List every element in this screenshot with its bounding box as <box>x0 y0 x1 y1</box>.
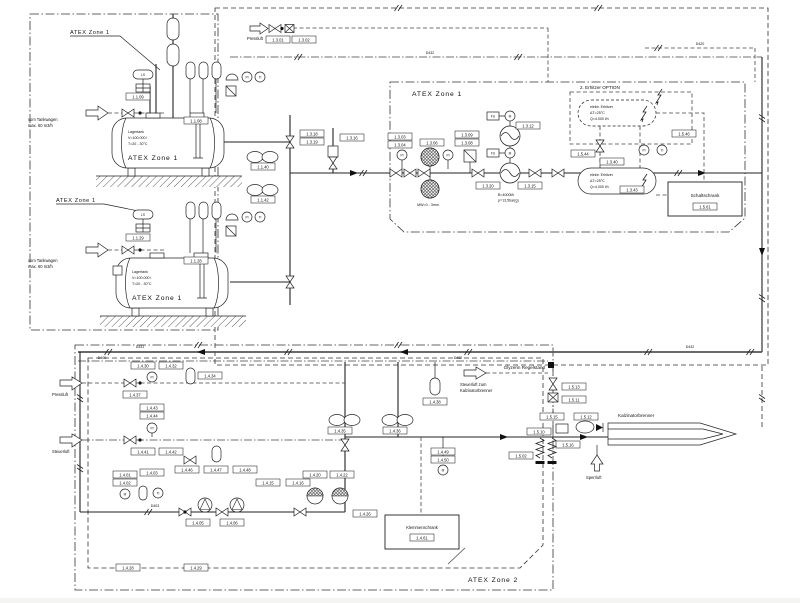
glyzerin-riser-1: 1.4.35 <box>328 415 360 452</box>
lightning-icon <box>656 89 662 105</box>
tag-box: 1.4.05 <box>192 520 204 525</box>
ti-gauge-label: TI <box>661 148 664 152</box>
tag-box: 1.5.13 <box>568 384 580 389</box>
pi-gauge-1: PI <box>397 150 407 169</box>
pressluft-supply-bottom: Pressluft 1.4.37 <box>52 377 147 398</box>
tag-box: 1.4.20 <box>309 472 321 477</box>
zone-label-atex1-midleft: ATEX Zone 1 <box>56 198 96 204</box>
tank1-zone-label: ATEX Zone 1 <box>128 155 178 162</box>
ls-instrument-label: LS <box>141 213 145 217</box>
tag-box: 1.4.35 <box>334 428 346 433</box>
pid-diagram: ATEX Zone 1 ATEX Zone 1 ATEX Zone 1 ATEX… <box>0 0 800 598</box>
heater-sensors: PI TI 1.5.44 1.3.40 1.5.46 <box>571 130 696 165</box>
pump-cluster-center: 1.4.15 1.4.16 1.4.20 1.4.22 1.4.26 <box>256 471 377 517</box>
tank1-name: Lagertank <box>128 130 144 134</box>
tag-box: 1.4.37 <box>129 392 141 397</box>
tag-box: 1.1.28 <box>190 258 202 263</box>
buffer-capsule: 1.4.38 <box>423 362 447 405</box>
heater2-line2: ΔT=25°C <box>590 179 605 183</box>
tag-box: 1.3.20 <box>482 183 494 188</box>
tag-box: 1.3.16 <box>346 135 358 140</box>
line-label-d403: D403 <box>151 504 160 508</box>
heater1-line1: elektr. Erhitzer <box>590 105 614 109</box>
tag-box: 1.3.43 <box>626 187 638 192</box>
tank2-volume: V=100.000 l <box>132 276 151 280</box>
line-label-d432-top: D432 <box>426 51 435 55</box>
tag-box: 1.4.43 <box>146 405 158 410</box>
pressluft-supply-top: Pressluft 1.3.01 1.3.02 <box>247 23 316 43</box>
pressluft-label-bottom: Pressluft <box>52 392 69 397</box>
filter-mesh-label: MW=0 - 3mm <box>417 203 439 207</box>
line-label-d420: D420 <box>696 42 705 46</box>
tag-box: 1.4.36 <box>389 428 401 433</box>
ti-gauge-label: TI <box>157 491 160 495</box>
tag-box: 1.3.02 <box>298 37 310 42</box>
collector-station: 1.1.40 1.1.42 <box>247 136 294 288</box>
tag-box: 1.5.11 <box>568 397 580 402</box>
tag-box: 1.4.30 <box>137 363 149 368</box>
fu-box-label: FU <box>491 152 496 156</box>
tag-box: 1.5.61 <box>699 204 711 209</box>
tag-box: 1.4.02 <box>119 480 131 485</box>
tag-box: 1.5.10 <box>533 429 545 434</box>
flow-spec-1: B=4000l/h <box>498 193 514 197</box>
bottom-edge-tags: 1.4.28 1.4.29 <box>116 564 208 571</box>
feed-motor-group: 1.4.49 1.4.50 M <box>431 437 455 475</box>
tag-box: 1.4.41 <box>137 449 149 454</box>
burner-label: Kalzinatorbrenner <box>618 413 655 418</box>
tag-box: 1.4.32 <box>165 363 177 368</box>
tag-box: 1.3.40 <box>606 159 618 164</box>
tag-box: 1.4.38 <box>429 399 441 404</box>
terminal-cabinet-label: Klemmenschrank <box>406 525 439 530</box>
control-cabinet-label: Schaltschrank <box>691 193 721 198</box>
sperrluft-inlet: Sperrluft <box>586 445 603 480</box>
tag-box: 1.3.04 <box>394 142 406 147</box>
tag-box: 1.3.15 <box>524 183 536 188</box>
tag-box: 1.4.22 <box>336 472 348 477</box>
control-station: 1.3.18 1.3.19 1.3.16 <box>300 128 364 173</box>
zone-label-atex2: ATEX Zone 2 <box>468 577 518 584</box>
main-line-valves <box>390 169 564 177</box>
tag-box: 1.4.47 <box>210 467 222 472</box>
tag-box: 1.4.34 <box>204 373 216 378</box>
line-label-d400: D400 <box>98 356 107 360</box>
tag-box: 1.1.09 <box>132 94 144 99</box>
pump-icon <box>230 498 244 512</box>
pid-diagram-page: ATEX Zone 1 ATEX Zone 1 ATEX Zone 1 ATEX… <box>0 0 800 598</box>
ti-gauge-label: TI <box>259 75 262 79</box>
zone-label-atex1-process: ATEX Zone 1 <box>412 91 462 98</box>
tag-box: 1.4.48 <box>239 467 251 472</box>
fu-box-label: FU <box>491 115 496 119</box>
pump-heater-block-2: FU M <box>487 148 520 183</box>
air-regulator-row: 1.4.30 1.4.32 PI 1.4.34 <box>131 362 222 384</box>
pump-icon <box>198 498 212 512</box>
steuerluft-zum-label1: Steuerluft zum <box>460 382 487 387</box>
pi-gauge-label: PI <box>150 375 153 379</box>
tank2-temp: T=20 - 30°C <box>132 282 152 286</box>
tag-box: 1.4.29 <box>190 565 202 570</box>
boundary-connector <box>548 362 554 368</box>
sperrluft-label: Sperrluft <box>586 475 602 480</box>
tag-box: 1.4.42 <box>165 449 177 454</box>
pi-gauge-label: PI <box>446 153 449 157</box>
pressluft-label-top: Pressluft <box>247 36 264 41</box>
storage-tank-1: Lagertank V=100.000 l T=20 - 30°C ATEX Z… <box>96 113 242 187</box>
tag-box: 1.1.08 <box>190 118 202 123</box>
tag-box: 1.3.08 <box>461 140 473 145</box>
tanker-label-2a: vom Tankwagen <box>28 258 58 263</box>
tag-box: 1.4.15 <box>262 480 274 485</box>
tag-box: 1.3.18 <box>306 131 318 136</box>
zone-label-atex1-topleft: ATEX Zone 1 <box>70 30 110 36</box>
relief-group: 1.4.46 1.4.47 1.4.48 <box>175 446 257 473</box>
terminal-cabinet: Klemmenschrank 1.4.61 <box>385 515 465 564</box>
tag-box: 1.4.46 <box>181 467 193 472</box>
sight-glass <box>464 150 476 173</box>
tag-box: 1.3.06 <box>426 140 438 145</box>
tag-box: 1.3.19 <box>306 139 318 144</box>
heater-option-label: 2. Erhitzer OPTION <box>580 85 620 90</box>
pi-gauge-label: PI <box>150 426 153 430</box>
tag-box: 1.1.42 <box>257 197 269 202</box>
control-cabinet: Schaltschrank 1.5.61 <box>656 113 742 216</box>
pi-gauge-label: PI <box>642 148 645 152</box>
tag-box: 1.1.29 <box>132 235 144 240</box>
ti-gauge-label: TI <box>259 215 262 219</box>
tag-box: 1.4.44 <box>146 413 158 418</box>
tag-box: 1.5.12 <box>580 414 592 419</box>
tag-box: 1.5.44 <box>577 151 589 156</box>
tank2-name: Lagertank <box>132 270 148 274</box>
pi-gauge-label: PI <box>245 75 248 79</box>
steuerluft-zum-brenner: Steuerluft zum Kalzinatorbrenner <box>460 367 493 393</box>
storage-tank-2: Lagertank V=100.000 l T=20 - 30°C ATEX Z… <box>100 253 246 327</box>
heater1-line3: Q=4.000 l/h <box>590 117 609 121</box>
tag-box: 1.5.46 <box>678 131 690 136</box>
duplex-filter: MW=0 - 3mm <box>417 148 439 207</box>
motor-label: M <box>442 468 445 472</box>
line-label-d431: D431 <box>136 345 145 349</box>
steuerluft-label: Steuerluft <box>52 449 70 454</box>
tag-box: 1.4.03 <box>146 470 158 475</box>
motor-label: M <box>509 151 512 155</box>
heater1-line2: ΔT=25°C <box>590 111 605 115</box>
pi-gauge-2: PI <box>443 150 453 169</box>
ls-instrument-label: LS <box>141 73 145 77</box>
tank1-side-instruments: PI TI <box>226 72 265 96</box>
tank1-volume: V=100.000 l <box>128 136 147 140</box>
tag-box: 1.3.09 <box>461 132 473 137</box>
tag-box: 1.4.01 <box>119 472 131 477</box>
tag-box: 1.5.16 <box>562 442 574 447</box>
tag-box: 1.1.40 <box>257 164 269 169</box>
tanker-label-2b: max. 60 m3/h <box>28 264 54 269</box>
line-label-d432-header: D432 <box>686 345 695 349</box>
tag-box: 1.3.03 <box>394 134 406 139</box>
tanker-label-1a: vom Tankwagen <box>28 117 58 122</box>
tank2-side-instruments: PI TI <box>226 212 265 236</box>
electric-heater-main: elektr. Erhitzer ΔT=25°C Q=4.000 l/h 1.3… <box>578 168 656 194</box>
mid-regulator-group: 1.4.43 1.4.44 PI <box>140 404 164 437</box>
steuerluft-zum-label2: Kalzinatorbrenner <box>460 388 493 393</box>
tanker-label-1b: max. 60 m3/h <box>28 123 54 128</box>
flow-spec-2: p=13,5bar(g) <box>498 199 519 203</box>
line-label-d402: D402 <box>454 356 463 360</box>
tag-box: 1.4.49 <box>437 449 449 454</box>
tag-box: 1.4.50 <box>437 457 449 462</box>
tag-box: 1.5.15 <box>546 414 558 419</box>
pump-cluster-left: 1.4.01 1.4.02 1.4.03 M TI 1.4.05 1.4.06 <box>113 469 244 526</box>
tag-box: 1.4.16 <box>292 480 304 485</box>
glyzerin-regelstand-label: Glyzerin Regelstand <box>504 365 546 370</box>
heater2-line3: Q=4.000 l/h <box>590 185 609 189</box>
tag-box: 1.4.06 <box>226 520 238 525</box>
tag-box: 1.4.28 <box>122 565 134 570</box>
calciner-burner: Kalzinatorbrenner <box>608 413 736 445</box>
tag-box: 1.3.12 <box>522 123 534 128</box>
tank2-zone-label: ATEX Zone 1 <box>132 295 182 302</box>
tag-box: 1.3.01 <box>272 37 284 42</box>
pi-gauge-label: PI <box>245 215 248 219</box>
tag-box: 1.4.61 <box>416 535 428 540</box>
pi-gauge-label: PI <box>400 153 403 157</box>
tank1-temp: T=20 - 30°C <box>128 142 148 146</box>
motor-label: M <box>124 492 127 496</box>
zone-label-leader-1 <box>70 36 160 70</box>
tag-box: 1.4.26 <box>359 511 371 516</box>
steuerluft-supply: Steuerluft 1.4.41 1.4.42 <box>52 434 183 455</box>
motor-label: M <box>509 114 512 118</box>
tag-box: 1.5.02 <box>515 453 527 458</box>
heater2-line1: elektr. Erhitzer <box>590 173 614 177</box>
